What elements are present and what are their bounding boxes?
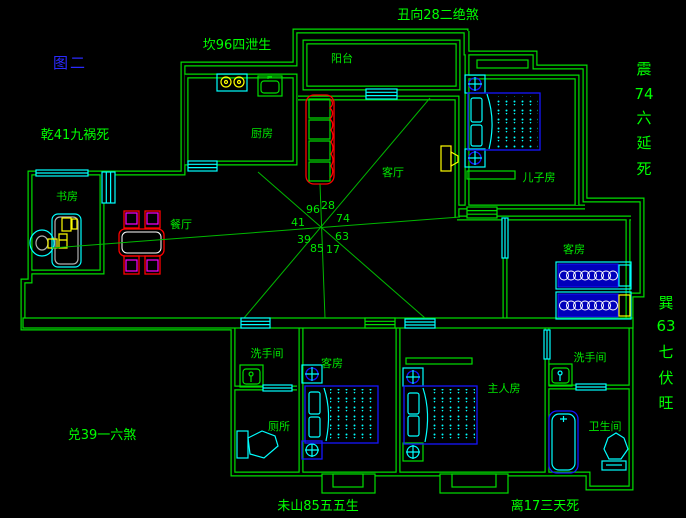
figure-title: 图二 bbox=[53, 54, 87, 72]
study-furniture bbox=[30, 214, 81, 267]
room-label-kitchen: 厨房 bbox=[251, 127, 273, 140]
faucet-icon bbox=[249, 372, 253, 382]
room-label-guest-right: 客房 bbox=[563, 242, 585, 256]
ray-west-east bbox=[52, 217, 460, 248]
room-label-wash-left: 洗手间 bbox=[251, 346, 284, 360]
compass-number: 74 bbox=[336, 212, 350, 225]
fengshui-northwest: 乾41九祸死 bbox=[41, 128, 110, 143]
room-label-toilet: 厕所 bbox=[268, 420, 290, 433]
sofa-cushion bbox=[309, 99, 330, 118]
pillow bbox=[309, 392, 320, 414]
compass-number: 28 bbox=[321, 199, 335, 212]
pillow bbox=[309, 417, 320, 437]
toilet-bowl bbox=[248, 431, 278, 458]
nightstand-icon bbox=[403, 368, 423, 386]
window bbox=[467, 207, 497, 218]
room-label-wash-right: 洗手间 bbox=[574, 350, 607, 364]
faucet-icon bbox=[558, 371, 562, 381]
compass-number: 63 bbox=[335, 230, 349, 243]
window bbox=[241, 318, 270, 328]
window bbox=[366, 89, 397, 99]
pillow bbox=[408, 416, 419, 436]
nightstand-icon bbox=[302, 365, 322, 383]
fengshui-east-column: 震 74 六 延 死 bbox=[634, 60, 653, 178]
monitor-icon bbox=[62, 218, 71, 231]
chair-seat bbox=[36, 236, 48, 250]
door bbox=[576, 384, 606, 390]
room-label-dining: 餐厅 bbox=[170, 217, 192, 231]
room-label-study: 书房 bbox=[56, 190, 78, 203]
blanket-fold bbox=[324, 388, 329, 441]
door bbox=[263, 385, 292, 391]
compass-number: 39 bbox=[297, 233, 311, 246]
room-label-son: 儿子房 bbox=[523, 171, 556, 184]
chair bbox=[145, 256, 160, 274]
fengshui-southeast-column: 巽 63 七 伏 旺 bbox=[656, 294, 675, 412]
room-label-balcony: 阳台 bbox=[331, 51, 353, 65]
speaker-icon bbox=[72, 219, 77, 229]
mattress bbox=[330, 389, 376, 441]
bathroom-furniture bbox=[549, 364, 628, 473]
column-char: 旺 bbox=[658, 394, 673, 412]
room-label-guest-bottom: 客房 bbox=[321, 356, 343, 370]
floorplan-canvas: 图二 坎96四泄生 丑向28二绝煞 乾41九祸死 兑39一六煞 未山85五五生 … bbox=[0, 0, 686, 518]
pillow bbox=[471, 98, 482, 122]
pillow bbox=[471, 125, 482, 146]
wardrobe bbox=[477, 60, 528, 68]
column-char: 六 bbox=[636, 109, 651, 127]
bunk-bed bbox=[556, 262, 631, 289]
floorplan-drawing: 图二 坎96四泄生 丑向28二绝煞 乾41九祸死 兑39一六煞 未山85五五生 … bbox=[0, 0, 686, 518]
compass-number: 85 bbox=[310, 242, 324, 255]
mattress bbox=[429, 389, 475, 442]
chair bbox=[145, 211, 160, 228]
nightstand-icon bbox=[403, 443, 423, 461]
window bbox=[365, 318, 395, 328]
compass-number: 96 bbox=[306, 203, 320, 216]
door bbox=[544, 330, 550, 359]
window bbox=[188, 161, 217, 171]
toilet-tank bbox=[237, 431, 248, 458]
column-char: 63 bbox=[656, 317, 675, 335]
toilet-bowl bbox=[604, 433, 628, 459]
fengshui-facing: 丑向28二绝煞 bbox=[397, 7, 479, 23]
master-furniture bbox=[403, 358, 477, 461]
column-char: 死 bbox=[636, 160, 651, 178]
sofa-cushion bbox=[309, 120, 330, 139]
bunk-bed bbox=[556, 292, 631, 319]
tv bbox=[441, 146, 451, 171]
room-label-living: 客厅 bbox=[382, 165, 404, 179]
kitchen-sink-basin bbox=[261, 81, 279, 93]
ray-nw-se bbox=[258, 172, 425, 318]
column-char: 七 bbox=[658, 343, 673, 361]
compass-number: 41 bbox=[291, 216, 305, 229]
fengshui-south: 离17三天死 bbox=[511, 498, 580, 514]
mattress bbox=[493, 96, 538, 148]
column-char: 伏 bbox=[658, 369, 673, 387]
guest-right-furniture bbox=[556, 262, 631, 319]
window bbox=[405, 319, 435, 328]
guest-bottom-furniture bbox=[302, 365, 378, 459]
burner-center bbox=[225, 81, 228, 84]
fengshui-west: 兑39一六煞 bbox=[68, 428, 137, 443]
fengshui-sitting: 未山85五五生 bbox=[277, 499, 359, 514]
shelf bbox=[467, 171, 515, 179]
nightstand-icon bbox=[302, 441, 322, 459]
washroom-left-furniture bbox=[237, 365, 278, 458]
room-label-bathroom: 卫生间 bbox=[589, 419, 622, 433]
door bbox=[502, 218, 508, 258]
bay-window bbox=[322, 474, 375, 493]
wardrobe bbox=[406, 358, 472, 364]
bathtub-inner bbox=[552, 414, 575, 470]
blanket-fold bbox=[487, 94, 492, 149]
chair bbox=[124, 211, 139, 228]
compass-number: 17 bbox=[326, 243, 340, 256]
pillow bbox=[408, 393, 419, 414]
door bbox=[102, 172, 115, 203]
chair bbox=[124, 256, 139, 274]
column-char: 巽 bbox=[658, 294, 673, 312]
keyboard-icon bbox=[59, 234, 67, 248]
hall-south-wall bbox=[23, 318, 633, 328]
blanket-fold bbox=[423, 388, 428, 442]
tub-faucet-icon bbox=[560, 416, 567, 422]
column-char: 74 bbox=[634, 85, 653, 103]
column-char: 震 bbox=[636, 60, 651, 78]
window bbox=[36, 170, 88, 176]
fengshui-north: 坎96四泄生 bbox=[203, 38, 272, 53]
burner-center bbox=[238, 81, 241, 84]
chair bbox=[30, 230, 54, 256]
sofa-cushion bbox=[309, 141, 330, 160]
bay-window bbox=[440, 474, 508, 493]
sofa-cushion bbox=[309, 162, 330, 181]
room-label-master: 主人房 bbox=[488, 382, 521, 395]
column-char: 延 bbox=[636, 134, 651, 152]
